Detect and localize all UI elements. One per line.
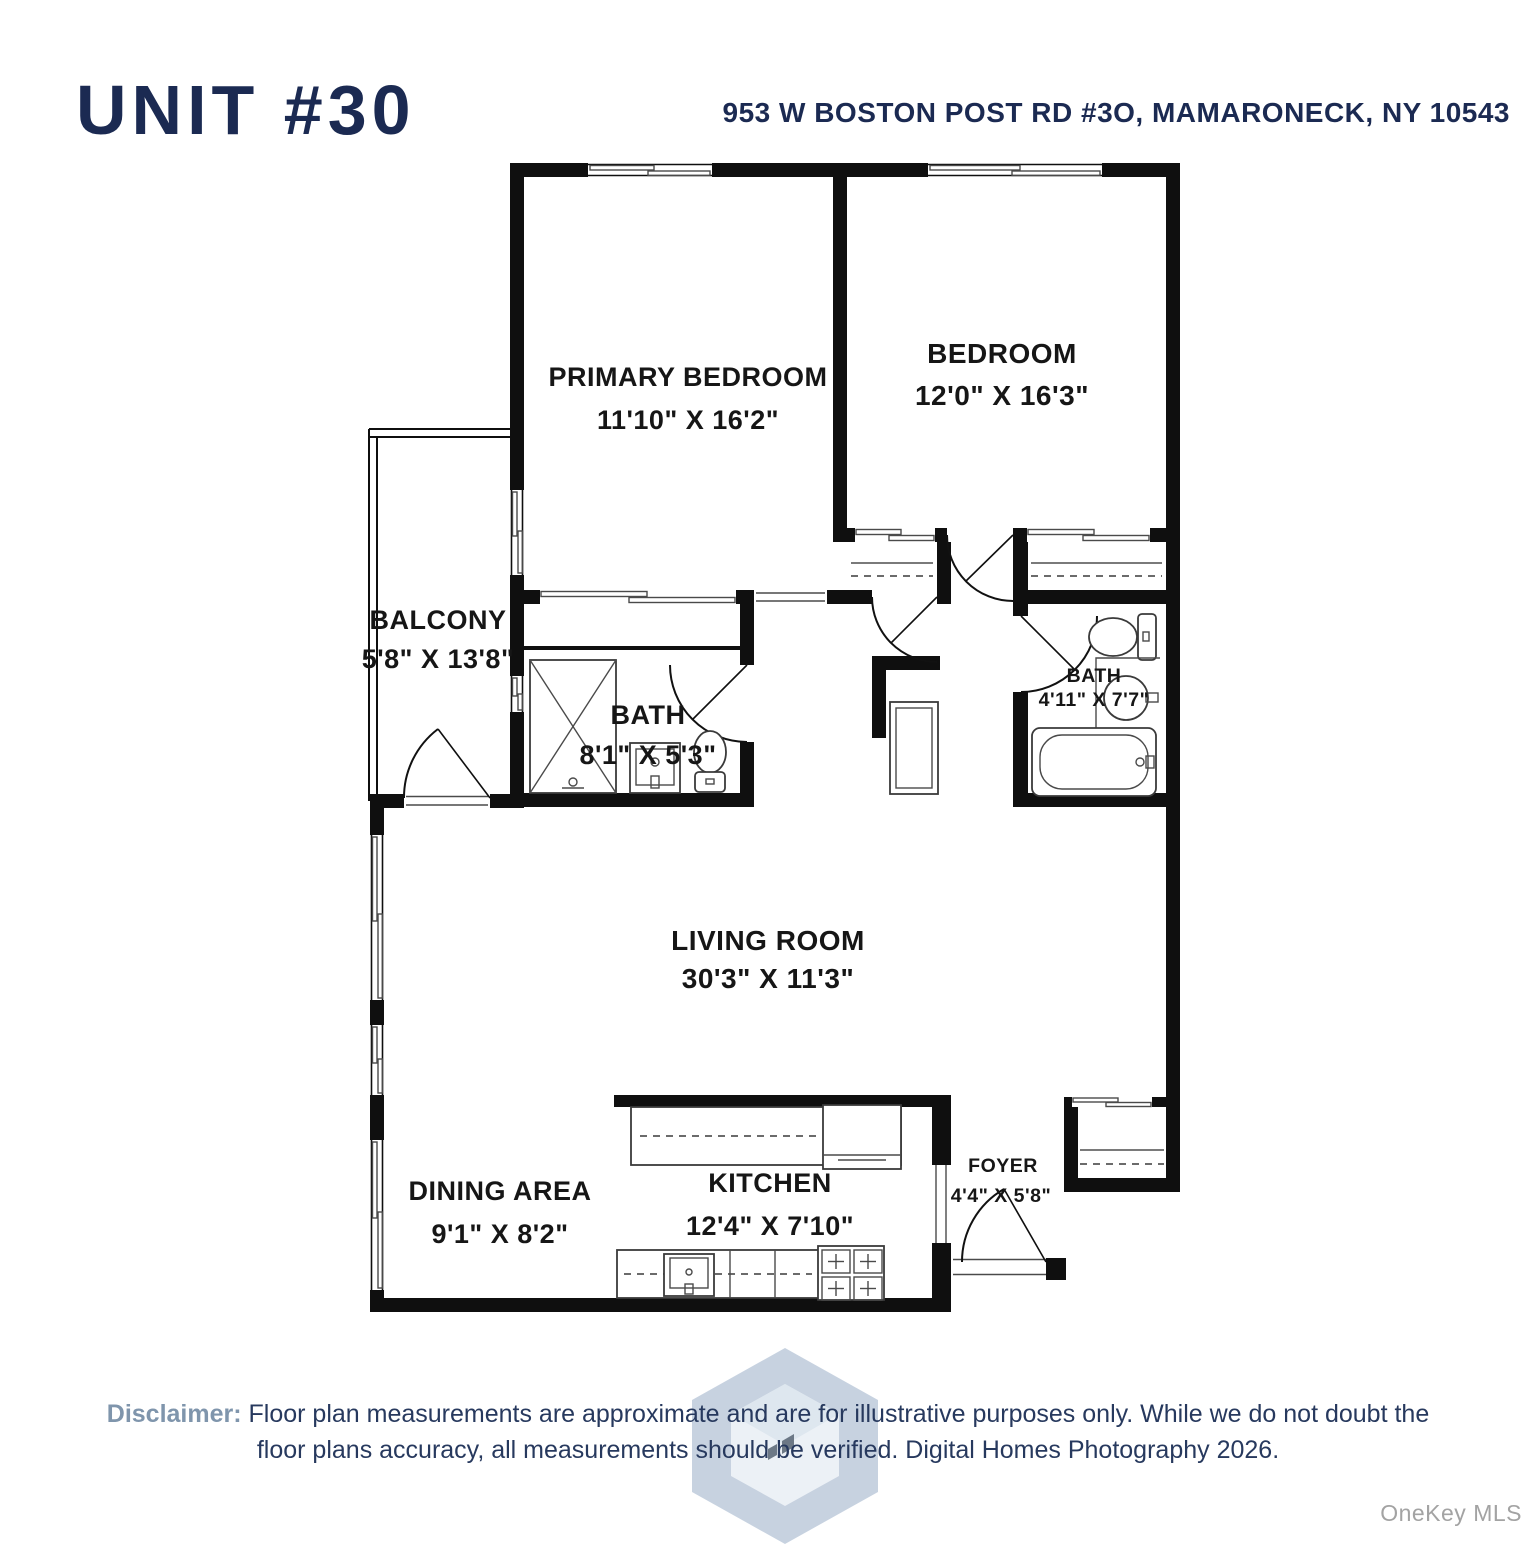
primary-bedroom-dims: 11'10" X 16'2" (597, 405, 779, 435)
disclaimer-line2: floor plans accuracy, all measurements s… (0, 1432, 1536, 1468)
kitchen-label: KITCHEN (708, 1168, 832, 1198)
window-icon (510, 676, 524, 712)
floor-plan-svg: PRIMARY BEDROOM 11'10" X 16'2" BEDROOM 1… (0, 0, 1536, 1536)
bath-primary-label: BATH (611, 700, 686, 730)
dining-area-dims: 9'1" X 8'2" (431, 1219, 568, 1249)
mls-watermark: OneKey MLS (1380, 1500, 1522, 1527)
foyer-label: FOYER (968, 1155, 1038, 1177)
counter-peninsula (631, 1105, 901, 1169)
disclaimer: Disclaimer: Floor plan measurements are … (0, 1396, 1536, 1468)
sliding-door-icon (1072, 1097, 1152, 1107)
door-swing-icon (404, 729, 490, 798)
living-room-dims: 30'3" X 11'3" (682, 963, 855, 994)
floor-plan-page: { "page": { "title": "UNIT #30", "addres… (0, 0, 1536, 1536)
door-swing-icon (872, 597, 937, 662)
disclaimer-line1: Disclaimer: Floor plan measurements are … (0, 1396, 1536, 1432)
utility-shaft (890, 702, 938, 794)
primary-bedroom-label: PRIMARY BEDROOM (548, 362, 827, 392)
window-icon (370, 1140, 384, 1290)
bedroom-dims: 12'0" X 16'3" (915, 380, 1089, 411)
balcony-dims: 5'8" X 13'8" (362, 644, 515, 674)
bath-primary-dims: 8'1" X 5'3" (579, 740, 716, 770)
kitchen-dims: 12'4" X 7'10" (686, 1211, 854, 1241)
window-icon (370, 1025, 384, 1095)
toilet-icon (1089, 614, 1156, 660)
kitchen-sink-icon (664, 1254, 714, 1296)
sliding-door-icon (1027, 528, 1150, 542)
living-room-label: LIVING ROOM (671, 925, 865, 956)
bedroom-label: BEDROOM (927, 338, 1077, 369)
bath-hall-dims: 4'11" X 7'7" (1039, 689, 1150, 711)
window-icon (928, 163, 1102, 177)
sliding-door-icons (540, 528, 1152, 1107)
window-icon (510, 490, 524, 575)
bathtub-icon (1032, 728, 1156, 796)
foyer-dims: 4'4" X 5'8" (951, 1185, 1052, 1207)
dining-area-label: DINING AREA (408, 1176, 591, 1206)
window-icon (588, 163, 712, 177)
stove-icon (818, 1246, 884, 1300)
balcony-label: BALCONY (370, 605, 507, 635)
window-icon (370, 835, 384, 1000)
sliding-door-icon (540, 590, 736, 604)
shower-icon (530, 660, 616, 793)
disclaimer-text-1: Floor plan measurements are approximate … (249, 1400, 1430, 1428)
disclaimer-label: Disclaimer: (107, 1400, 242, 1428)
sliding-door-icon (855, 528, 935, 542)
bath-hall-label: BATH (1067, 665, 1122, 687)
kitchen-fixtures (617, 1105, 901, 1300)
